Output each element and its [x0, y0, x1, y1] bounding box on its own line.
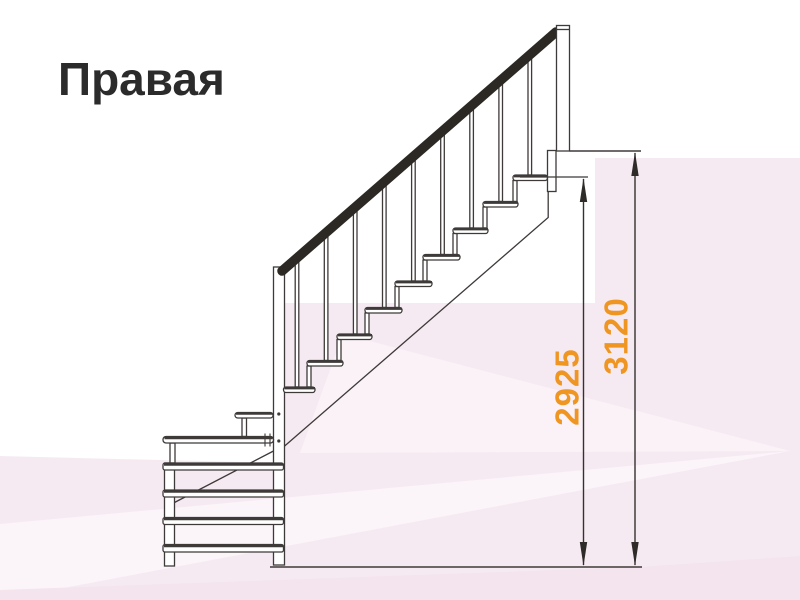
tread [423, 255, 460, 261]
screw-dot [277, 439, 280, 442]
baluster [528, 55, 532, 175]
screw-dot [277, 412, 280, 415]
dimension-value-3120: 3120 [598, 297, 635, 374]
winder-bar [163, 545, 284, 553]
top-newel-post [557, 26, 570, 152]
baluster [353, 208, 357, 334]
top-post-body [557, 26, 570, 152]
riser-support [395, 287, 399, 308]
staircase-diagram-page: 2925 3120 Правая [0, 0, 800, 600]
riser-support [483, 207, 487, 228]
riser-support [423, 260, 427, 281]
tread [453, 228, 488, 234]
tread [395, 281, 432, 287]
wall-mount-board [548, 151, 557, 192]
tread [307, 361, 343, 367]
baluster [324, 233, 328, 360]
baluster [499, 80, 503, 201]
riser-support [513, 181, 517, 202]
baluster [412, 157, 416, 281]
page-title: Правая [58, 56, 225, 102]
riser-support [453, 234, 457, 255]
tread [483, 202, 518, 208]
riser-support [365, 313, 369, 334]
winder-bar [163, 463, 284, 470]
riser-support [307, 366, 311, 387]
baluster [470, 106, 474, 228]
winder-bar [163, 490, 284, 497]
winder-bar [235, 413, 273, 419]
tread [513, 175, 548, 181]
baluster [441, 131, 445, 254]
tread [337, 334, 372, 340]
baluster [383, 182, 387, 307]
tread [365, 308, 402, 314]
tread [284, 387, 316, 393]
riser-support [337, 340, 341, 361]
dimension-value-2925: 2925 [549, 348, 586, 425]
entry-baluster [242, 418, 247, 437]
winder-bar [163, 518, 284, 525]
baluster [295, 259, 299, 387]
small-support [170, 443, 175, 463]
